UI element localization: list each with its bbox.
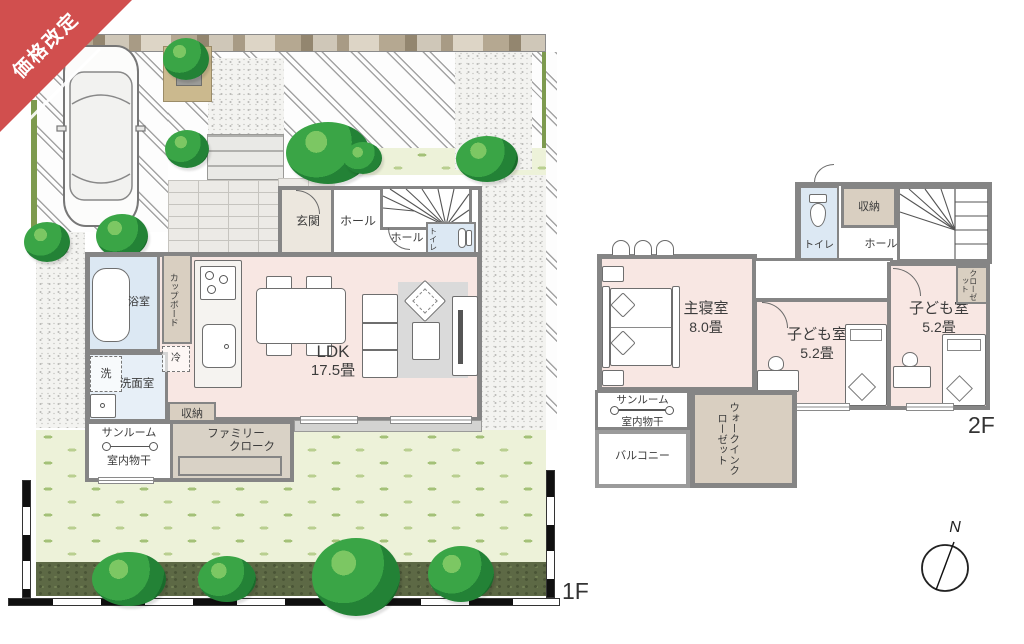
car (56, 42, 146, 230)
room-label-sunroom-1f: サンルーム (89, 427, 169, 440)
hall-corridor-2f (753, 258, 893, 302)
burner (205, 271, 214, 280)
room-label-washroom: 洗面室 (108, 378, 166, 392)
rod-line (111, 446, 149, 448)
room-label-family-cloak-1: ファミリー (188, 428, 284, 442)
stairs-2f (897, 186, 990, 262)
scale-bar-bottom (8, 598, 560, 606)
tv (458, 310, 463, 364)
sink-drain (224, 344, 229, 349)
window (390, 416, 472, 424)
room-label-sunroom-2f: サンルーム (599, 394, 686, 407)
gravel-right-side (482, 175, 546, 430)
room-label-ldk: LDK (290, 342, 376, 362)
window-arc (612, 240, 630, 255)
rod-end (149, 442, 158, 451)
toilet-tank-1f (466, 230, 472, 246)
room-label-hall-upper: ホール (332, 214, 384, 228)
scale-bar-right (546, 470, 555, 598)
closet-right-label: クローゼット (960, 268, 977, 302)
tree (344, 142, 382, 174)
bush (428, 546, 494, 602)
room-label-genkan: 玄関 (284, 214, 332, 228)
room-label-balcony: バルコニー (599, 450, 686, 463)
window-arc (634, 240, 652, 255)
kids-desk (757, 370, 799, 392)
gravel-patch-1 (208, 58, 284, 134)
room-label-bath: 浴室 (120, 296, 158, 309)
room-wic (690, 390, 797, 488)
rod-end (610, 406, 619, 415)
bush (312, 538, 400, 616)
fridge: 冷 (162, 346, 190, 372)
window (906, 403, 954, 411)
basin-drain (100, 403, 105, 408)
burner (219, 275, 228, 284)
drying-rod-2f (610, 406, 674, 414)
kitchen-sink (202, 324, 236, 368)
room-label-drying-2f: 室内物干 (599, 416, 686, 429)
coffee-table (412, 322, 440, 360)
floorplan-canvas: 玄関 ホール ホール トイレ 浴室 洗 洗面室 カップボード 冷 (0, 0, 1024, 644)
cloak-counter (178, 456, 282, 476)
nightstand (602, 266, 624, 282)
cupboard-label: カップボード (168, 258, 179, 342)
moss-strip-left (31, 100, 37, 232)
kids-desk-chair (768, 356, 784, 371)
compass-needle (912, 532, 978, 598)
kids-bed (845, 324, 887, 406)
room-label-wic: ウォークインクローゼット (716, 398, 740, 480)
room-label-toilet-1f: トイレ (428, 223, 438, 255)
bed-footboard (672, 286, 680, 368)
stove (200, 266, 236, 300)
yard-hatch-right (546, 52, 557, 430)
toilet-tank-2f (809, 194, 827, 203)
compass: N (912, 518, 1002, 608)
rod-end (102, 442, 111, 451)
window-arc (656, 240, 674, 255)
window (790, 403, 850, 411)
floor-label-1f: 1F (562, 578, 606, 606)
room-label-drying-1f: 室内物干 (89, 455, 169, 468)
rod-end (665, 406, 674, 415)
tv-board (452, 296, 478, 376)
tree (165, 130, 209, 168)
burner (207, 285, 216, 294)
bush (92, 552, 166, 606)
kids-desk (893, 366, 931, 388)
car-illustration (56, 42, 146, 230)
approach-tiles (168, 180, 278, 252)
dining-table (256, 288, 346, 344)
approach-steps (207, 134, 284, 180)
room-label-ldk-size: 17.5畳 (290, 362, 376, 380)
scale-bar-left (22, 480, 31, 598)
tree (456, 136, 518, 182)
nightstand (602, 370, 624, 386)
room-label-family-cloak-2: クローク (204, 441, 300, 455)
room-storage-2f: 収納 (841, 186, 897, 228)
kids-desk-chair (902, 352, 918, 367)
room-label-toilet-2f: トイレ (799, 240, 839, 252)
window (98, 477, 154, 484)
floor-label-2f: 2F (968, 412, 1012, 440)
bed-headboard (602, 286, 610, 368)
door-arc-toilet-2f (814, 164, 834, 182)
drying-rod-1f (102, 442, 158, 451)
kids-bed (942, 334, 986, 406)
bush (24, 222, 70, 262)
bush (198, 556, 256, 602)
window (300, 416, 358, 424)
rod-line (619, 409, 665, 411)
toilet-fixture-1f (458, 228, 466, 248)
tree (163, 38, 209, 80)
